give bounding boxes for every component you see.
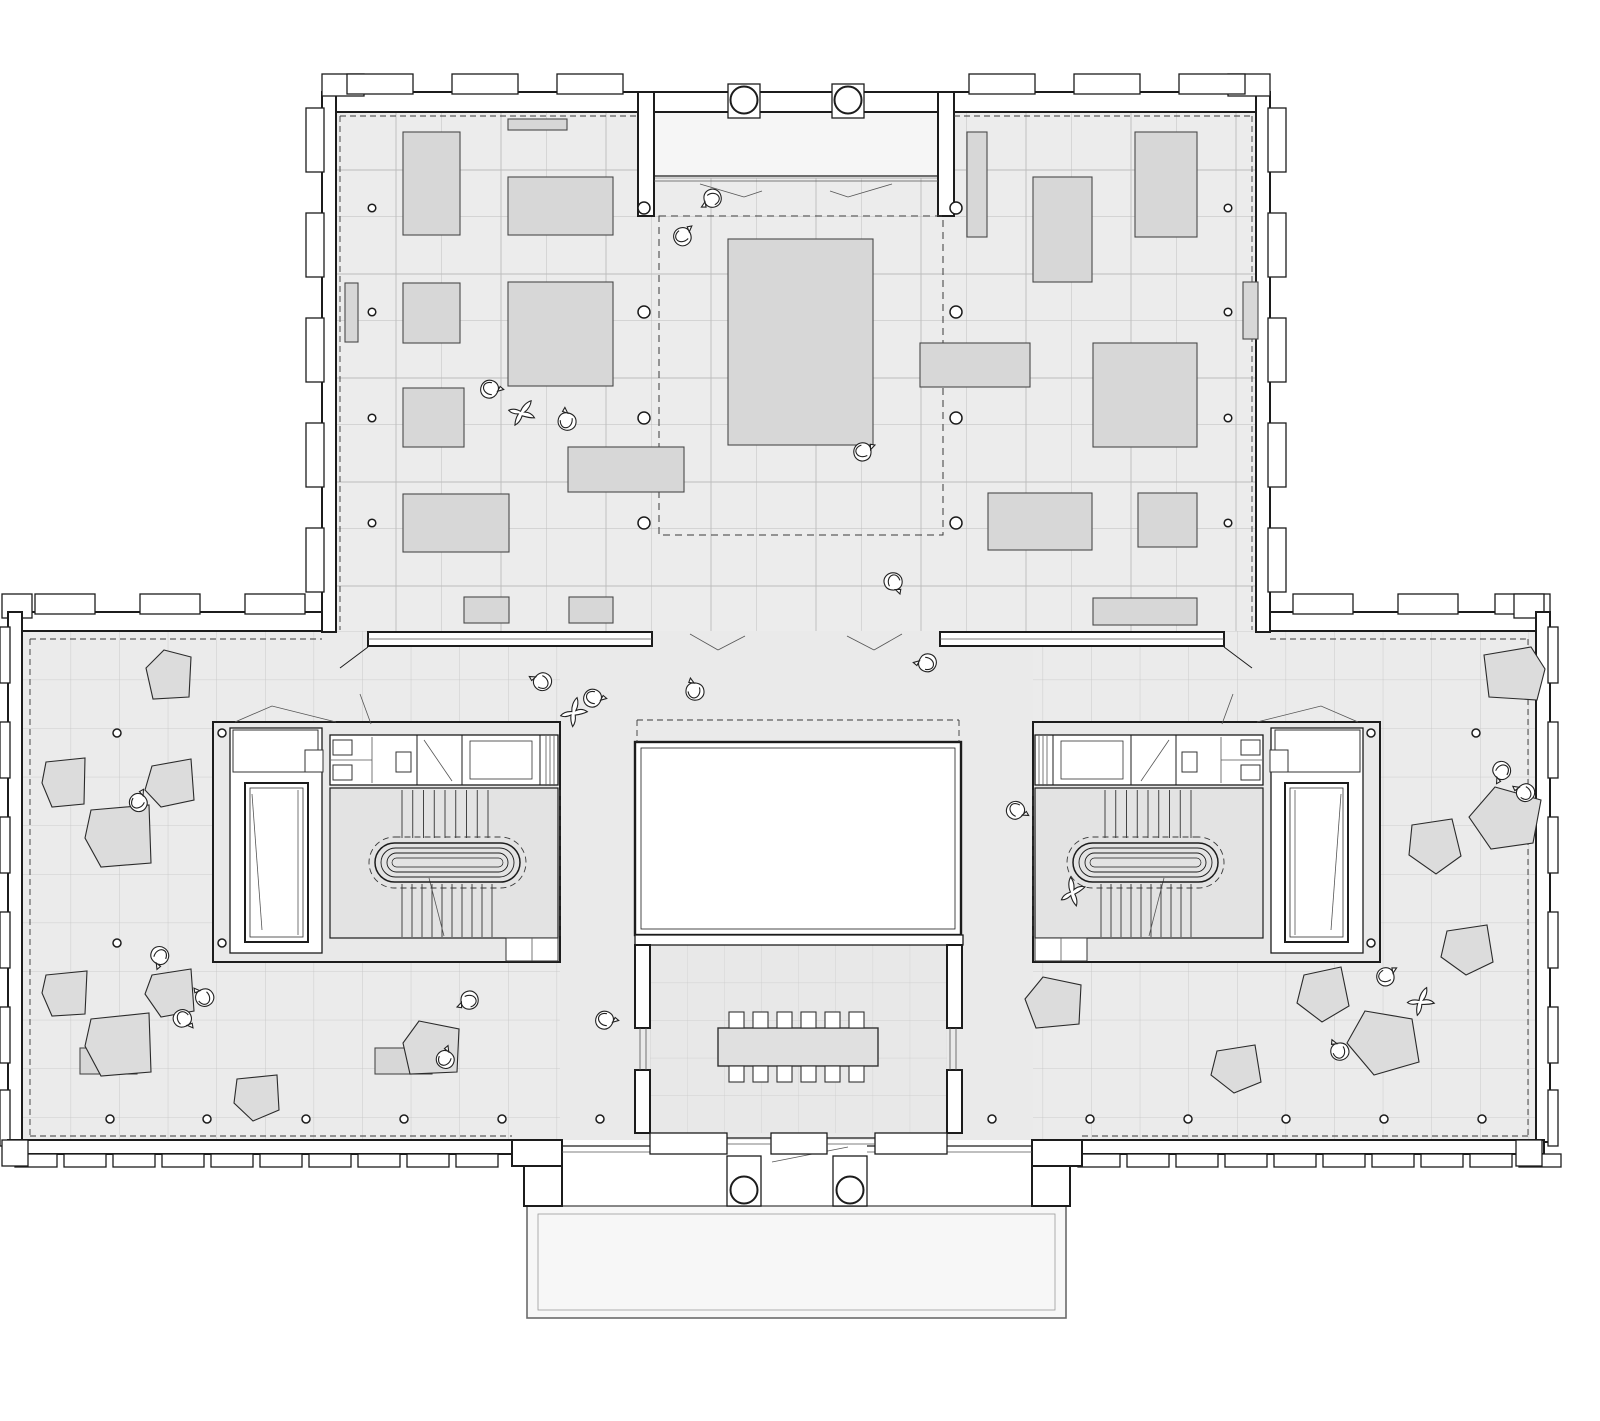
wall-segment — [8, 612, 322, 631]
column — [1472, 729, 1480, 737]
wall-segment — [309, 1154, 351, 1167]
wall-segment — [0, 1007, 10, 1063]
conference-room-element — [771, 1133, 827, 1154]
conference-room-element — [947, 1070, 962, 1133]
column — [1224, 204, 1232, 212]
wall-segment — [1398, 594, 1458, 614]
loggia-pier — [938, 92, 954, 216]
wall-segment — [1548, 912, 1558, 968]
column — [1367, 939, 1375, 947]
wall-segment — [1548, 627, 1558, 683]
wall-segment — [358, 1154, 400, 1167]
floor-plan-page — [0, 0, 1600, 1421]
wall-segment — [456, 1154, 498, 1167]
wall-segment — [1470, 1154, 1512, 1167]
furniture-block — [403, 494, 509, 552]
furniture-block — [920, 343, 1030, 387]
wall-segment — [1078, 1140, 1544, 1154]
stair-hall — [330, 788, 558, 938]
column — [596, 1115, 604, 1123]
furniture-block — [1033, 177, 1092, 282]
column — [368, 414, 376, 422]
column — [1380, 1115, 1388, 1123]
wall-segment — [1268, 528, 1286, 592]
wall-segment — [0, 722, 10, 778]
wall-segment — [1274, 1154, 1316, 1167]
column — [638, 306, 650, 318]
wall-segment — [1225, 1154, 1267, 1167]
wall-segment — [64, 1154, 106, 1167]
wall-segment — [557, 74, 623, 94]
column — [218, 729, 226, 737]
furniture-block — [1138, 493, 1197, 547]
terrace-step-block — [512, 1140, 562, 1166]
furniture-block — [568, 447, 684, 492]
conference-room — [635, 935, 963, 1154]
wc-fixture — [333, 765, 352, 780]
wall-segment — [306, 318, 324, 382]
stair-cores-mirrored — [1033, 694, 1380, 962]
conference-room-element — [650, 1133, 727, 1154]
furniture-block — [1093, 343, 1197, 447]
chair — [753, 1012, 768, 1028]
south-terrace — [527, 1206, 1066, 1318]
furniture-block — [967, 132, 987, 237]
column — [498, 1115, 506, 1123]
wall-segment — [245, 594, 305, 614]
sink-fixture — [396, 752, 411, 772]
elevator-shaft — [245, 783, 308, 942]
wall-segment — [0, 1090, 10, 1146]
loggia-pier — [638, 92, 654, 216]
stair-core-element — [1270, 750, 1288, 772]
atrium-void — [635, 742, 961, 935]
furniture-block — [345, 283, 358, 342]
chair — [825, 1012, 840, 1028]
column — [1224, 519, 1232, 527]
furniture-block — [508, 282, 613, 386]
column — [638, 202, 650, 214]
wall-segment — [1268, 318, 1286, 382]
furniture-block — [403, 132, 460, 235]
wall-segment — [1323, 1154, 1365, 1167]
wall-segment — [306, 108, 324, 172]
column — [1478, 1115, 1486, 1123]
wall-segment — [1548, 1007, 1558, 1063]
chair — [801, 1066, 816, 1082]
column — [638, 517, 650, 529]
column — [368, 308, 376, 316]
column — [113, 729, 121, 737]
wall-segment — [1270, 612, 1544, 631]
wc-fixture — [1241, 740, 1260, 755]
conference-room-element — [635, 1070, 650, 1133]
sink-fixture — [1182, 752, 1197, 772]
furniture-block — [569, 597, 613, 623]
wall-segment — [1516, 1140, 1542, 1166]
wall-segment — [260, 1154, 302, 1167]
wall-segment — [306, 423, 324, 487]
wall-segment — [1127, 1154, 1169, 1167]
wall-segment — [452, 74, 518, 94]
conference-room-element — [635, 945, 650, 1028]
column — [400, 1115, 408, 1123]
wall-segment — [969, 74, 1035, 94]
wall-segment — [1176, 1154, 1218, 1167]
round-column — [731, 87, 758, 114]
chair — [825, 1066, 840, 1082]
wall-segment — [1548, 1090, 1558, 1146]
stair-core-element — [305, 750, 323, 772]
wall-segment — [1421, 1154, 1463, 1167]
wall-segment — [113, 1154, 155, 1167]
wall-segment — [0, 912, 10, 968]
column — [106, 1115, 114, 1123]
furniture-block — [403, 388, 464, 447]
column — [950, 202, 962, 214]
chair — [729, 1012, 744, 1028]
round-column — [835, 87, 862, 114]
column — [1224, 414, 1232, 422]
wall-segment — [1293, 594, 1353, 614]
conference-table — [718, 1028, 878, 1066]
wall-segment — [347, 74, 413, 94]
chair — [849, 1066, 864, 1082]
column — [988, 1115, 996, 1123]
chair — [777, 1066, 792, 1082]
round-column — [731, 1177, 758, 1204]
rock-seat — [1484, 647, 1545, 700]
wall-segment — [1268, 108, 1286, 172]
rock-seat — [42, 971, 87, 1016]
wall-segment — [1078, 1154, 1120, 1167]
column — [1282, 1115, 1290, 1123]
wall-segment — [1268, 213, 1286, 277]
wall-segment — [1548, 722, 1558, 778]
terrace-step-block — [1032, 1166, 1070, 1206]
column — [950, 306, 962, 318]
wall-segment — [140, 594, 200, 614]
wall-segment — [322, 92, 1270, 112]
conference-room-element — [875, 1133, 947, 1154]
wall-segment — [306, 528, 324, 592]
conference-room-element — [635, 935, 963, 945]
furniture-block — [1135, 132, 1197, 237]
floor-plan-canvas — [0, 0, 1600, 1421]
column — [203, 1115, 211, 1123]
wall-segment — [1372, 1154, 1414, 1167]
furniture-block — [508, 177, 613, 235]
chair — [849, 1012, 864, 1028]
wall-segment — [306, 213, 324, 277]
terrace-step-block — [1032, 1140, 1082, 1166]
chair — [729, 1066, 744, 1082]
wall-segment — [407, 1154, 449, 1167]
chair — [753, 1066, 768, 1082]
column — [302, 1115, 310, 1123]
furniture-block — [1243, 282, 1258, 339]
wall-segment — [1179, 74, 1245, 94]
wall-segment — [1268, 423, 1286, 487]
wall-segment — [1548, 817, 1558, 873]
column — [638, 412, 650, 424]
conference-room-element — [947, 945, 962, 1028]
stair-hall — [1035, 788, 1263, 938]
wall-segment — [211, 1154, 253, 1167]
chair — [801, 1012, 816, 1028]
round-column — [837, 1177, 864, 1204]
rock-seat — [42, 758, 85, 807]
wall-segment — [0, 817, 10, 873]
column — [950, 517, 962, 529]
furniture-block — [464, 597, 509, 623]
wall-segment — [162, 1154, 204, 1167]
central-platform — [728, 239, 873, 445]
wall-segment — [35, 594, 95, 614]
column — [950, 412, 962, 424]
wc-fixture — [1241, 765, 1260, 780]
furniture-block — [403, 283, 460, 343]
column — [1086, 1115, 1094, 1123]
column — [218, 939, 226, 947]
wall-segment — [1074, 74, 1140, 94]
column — [368, 204, 376, 212]
chair — [777, 1012, 792, 1028]
furniture-block — [508, 119, 567, 130]
wall-segment — [2, 1140, 28, 1166]
furniture-block — [988, 493, 1092, 550]
terrace-step-block — [524, 1166, 562, 1206]
column — [1184, 1115, 1192, 1123]
wall-segment — [8, 1140, 512, 1154]
furniture-block — [1093, 598, 1197, 625]
atrium-void — [635, 742, 961, 935]
column — [113, 939, 121, 947]
wc-fixture — [333, 740, 352, 755]
column — [368, 519, 376, 527]
column — [1367, 729, 1375, 737]
column — [1224, 308, 1232, 316]
wall-segment — [0, 627, 10, 683]
elevator-shaft — [1285, 783, 1348, 942]
